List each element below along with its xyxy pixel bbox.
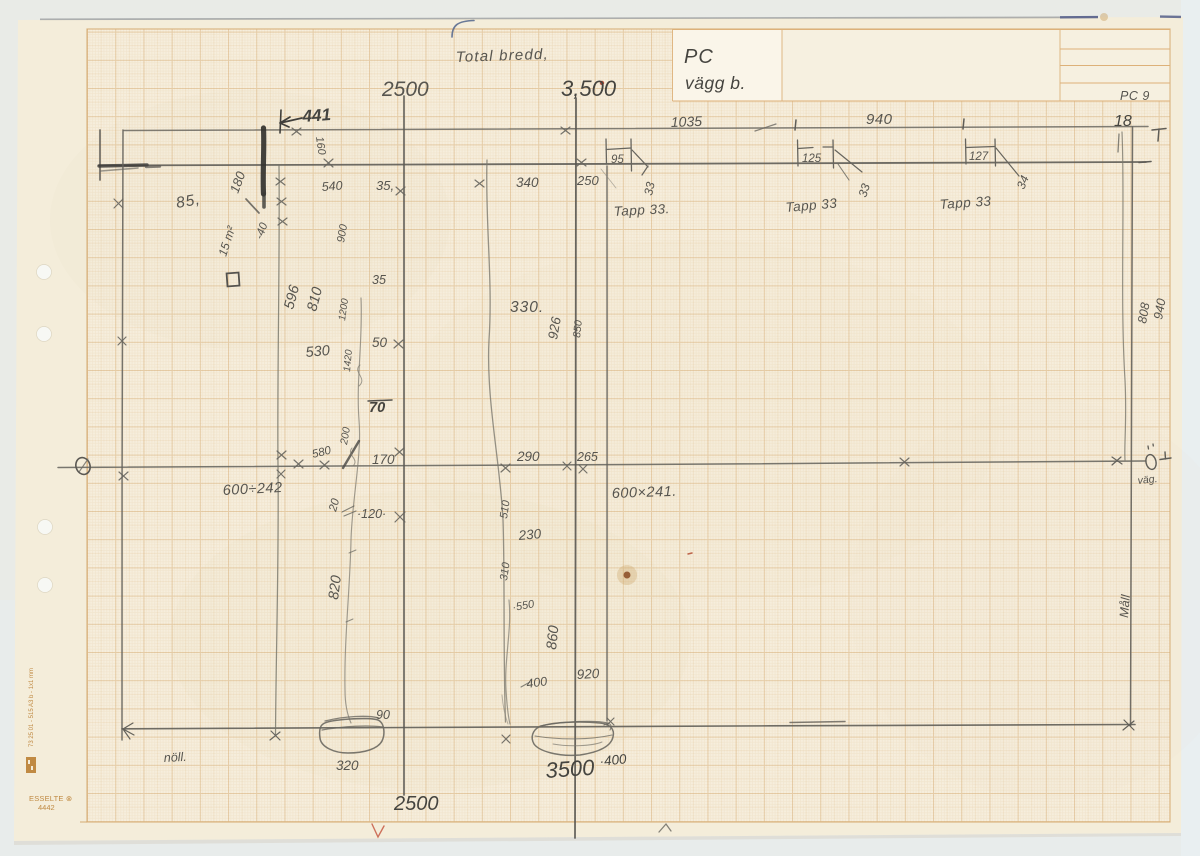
svg-text:vägg b.: vägg b. — [685, 73, 746, 93]
svg-text:Tapp 33.: Tapp 33. — [613, 201, 670, 219]
svg-text:18: 18 — [1114, 113, 1132, 130]
svg-text:340: 340 — [516, 175, 539, 190]
svg-text:850: 850 — [571, 319, 585, 338]
svg-text:90: 90 — [376, 708, 390, 722]
svg-text:820: 820 — [326, 575, 345, 601]
svg-text:nöll.: nöll. — [163, 750, 187, 765]
svg-text:2500: 2500 — [393, 793, 439, 815]
svg-text:Total bredd,: Total bredd, — [456, 46, 550, 66]
svg-text:50: 50 — [372, 335, 388, 350]
svg-text:4442: 4442 — [38, 803, 55, 812]
svg-text:400: 400 — [525, 674, 548, 691]
svg-text:125: 125 — [802, 153, 822, 165]
svg-text:Måll: Måll — [1117, 593, 1133, 618]
svg-text:250: 250 — [576, 173, 599, 188]
svg-text:35,: 35, — [376, 178, 394, 193]
svg-text:35: 35 — [372, 273, 386, 287]
svg-text:441: 441 — [301, 105, 332, 126]
svg-text:230: 230 — [517, 526, 542, 543]
svg-text:ESSELTE ⊗: ESSELTE ⊗ — [29, 794, 72, 803]
svg-text:PC: PC — [684, 46, 714, 68]
svg-text:600÷242: 600÷242 — [222, 480, 283, 499]
svg-text:3500: 3500 — [545, 755, 596, 783]
svg-text:127: 127 — [969, 151, 989, 163]
svg-text:170: 170 — [372, 452, 395, 467]
svg-text:330.: 330. — [510, 299, 544, 316]
svg-text:·400: ·400 — [599, 751, 628, 769]
svg-text:2500: 2500 — [381, 78, 429, 101]
svg-text:265: 265 — [576, 450, 598, 464]
svg-text:530: 530 — [305, 343, 331, 361]
svg-text:70: 70 — [369, 400, 385, 416]
svg-text:290: 290 — [516, 449, 540, 464]
svg-text:320: 320 — [336, 758, 359, 773]
svg-text:540: 540 — [321, 179, 343, 194]
svg-text:väg.: väg. — [1137, 473, 1158, 487]
svg-text:95: 95 — [611, 154, 624, 166]
svg-text:920: 920 — [576, 666, 600, 682]
svg-text:·120·: ·120· — [357, 507, 386, 521]
svg-text:1420: 1420 — [342, 349, 355, 373]
svg-text:600×241.: 600×241. — [612, 484, 677, 502]
svg-text:1035: 1035 — [671, 113, 703, 130]
svg-text:73 25 01 - 515 A3 b - 1x1 mm: 73 25 01 - 515 A3 b - 1x1 mm — [29, 668, 35, 747]
svg-text:3,500: 3,500 — [561, 76, 617, 101]
svg-text:PC 9: PC 9 — [1120, 89, 1150, 103]
svg-text:940: 940 — [866, 111, 893, 128]
svg-text:860: 860 — [544, 625, 562, 651]
